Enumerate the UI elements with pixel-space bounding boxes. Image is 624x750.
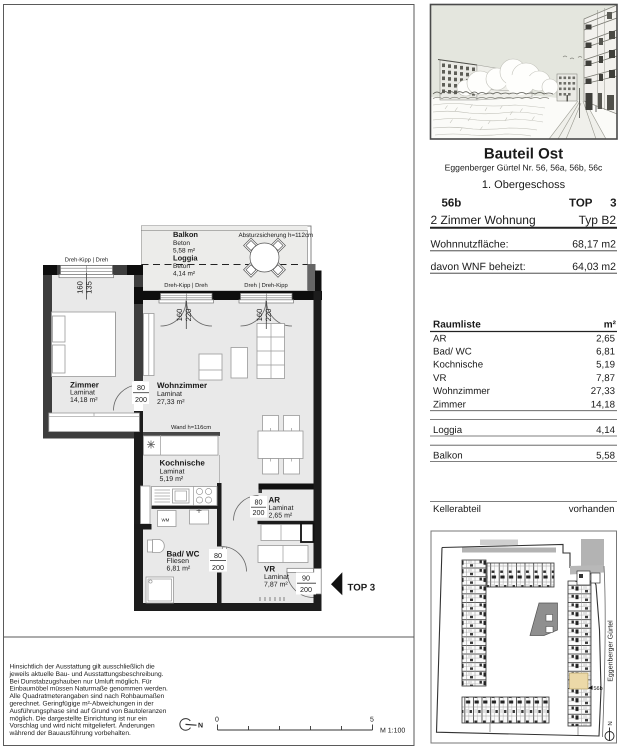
svg-text:7,87: 7,87 bbox=[596, 373, 615, 384]
svg-text:Bad/ WC: Bad/ WC bbox=[433, 347, 472, 358]
svg-text:Loggia: Loggia bbox=[173, 254, 198, 263]
svg-text:M 1:100: M 1:100 bbox=[380, 728, 405, 735]
svg-text:160: 160 bbox=[75, 281, 84, 294]
svg-text:WM: WM bbox=[162, 518, 170, 523]
svg-text:80: 80 bbox=[255, 498, 263, 507]
svg-text:0: 0 bbox=[215, 717, 219, 724]
svg-text:Vorschlag und wird nicht mitge: Vorschlag und wird nicht mitgeliefert. Ä… bbox=[10, 722, 155, 730]
svg-text:27,33 m²: 27,33 m² bbox=[157, 399, 185, 406]
svg-text:davon WNF beheizt:: davon WNF beheizt: bbox=[431, 261, 526, 273]
svg-text:Kochnische: Kochnische bbox=[433, 360, 483, 371]
svg-text:Loggia: Loggia bbox=[433, 425, 463, 436]
svg-text:56b: 56b bbox=[442, 198, 462, 210]
svg-text:Laminat: Laminat bbox=[264, 573, 289, 581]
svg-text:90: 90 bbox=[302, 574, 310, 583]
svg-text:200: 200 bbox=[212, 563, 224, 572]
svg-text:200: 200 bbox=[253, 508, 265, 517]
svg-text:Eggenberger Gürtel: Eggenberger Gürtel bbox=[607, 620, 615, 682]
svg-text:Bei Dunstabzugshauben nur Umlu: Bei Dunstabzugshauben nur Umluft möglich… bbox=[10, 678, 153, 685]
svg-text:200: 200 bbox=[300, 585, 312, 594]
svg-text:Laminat: Laminat bbox=[160, 468, 185, 476]
svg-text:5,19: 5,19 bbox=[596, 360, 615, 371]
svg-text:möglich. Die dargestellte Einr: möglich. Die dargestellte Einrichtung is… bbox=[10, 715, 148, 722]
svg-text:vorhanden: vorhanden bbox=[569, 504, 615, 515]
svg-text:4,14 m²: 4,14 m² bbox=[173, 271, 196, 278]
svg-text:Laminat: Laminat bbox=[70, 389, 95, 397]
svg-text:5,19 m²: 5,19 m² bbox=[160, 476, 184, 483]
svg-text:gerechnet. Geringfügige m²-Abw: gerechnet. Geringfügige m²-Abweichungen … bbox=[10, 701, 155, 708]
svg-text:Kellerabteil: Kellerabteil bbox=[433, 504, 481, 515]
svg-text:TOP: TOP bbox=[569, 198, 593, 210]
svg-text:Fliesen: Fliesen bbox=[167, 557, 190, 565]
svg-text:Bauteil Ost: Bauteil Ost bbox=[484, 146, 563, 163]
svg-text:Dreh-Kipp | Dreh: Dreh-Kipp | Dreh bbox=[164, 282, 207, 289]
svg-text:Ausführungsphase sind auf Grun: Ausführungsphase sind auf Grund von Baut… bbox=[10, 708, 167, 715]
svg-text:N: N bbox=[198, 723, 203, 730]
svg-text:Laminat: Laminat bbox=[269, 504, 294, 512]
svg-text:68,17 m2: 68,17 m2 bbox=[572, 239, 616, 251]
svg-text:220: 220 bbox=[264, 309, 273, 322]
svg-text:14,18: 14,18 bbox=[591, 399, 615, 410]
svg-text:80: 80 bbox=[214, 551, 222, 560]
svg-text:TOP 3: TOP 3 bbox=[348, 582, 376, 593]
svg-text:Einbaumöbel müssen Naturmaße g: Einbaumöbel müssen Naturmaße genommen we… bbox=[10, 686, 168, 693]
svg-text:Zimmer: Zimmer bbox=[433, 399, 467, 410]
svg-text:2,65: 2,65 bbox=[596, 333, 615, 344]
svg-text:200: 200 bbox=[135, 395, 147, 404]
svg-text:Beton: Beton bbox=[173, 240, 190, 247]
svg-text:N: N bbox=[607, 721, 614, 725]
svg-text:Typ B2: Typ B2 bbox=[579, 213, 617, 227]
svg-text:Dreh-Kipp | Dreh: Dreh-Kipp | Dreh bbox=[65, 257, 108, 264]
svg-text:Balkon: Balkon bbox=[173, 230, 198, 239]
svg-text:64,03 m2: 64,03 m2 bbox=[572, 261, 616, 273]
svg-text:AR: AR bbox=[433, 333, 446, 344]
svg-text:Eggenberger Gürtel Nr. 56, 56a: Eggenberger Gürtel Nr. 56, 56a, 56b, 56c bbox=[445, 163, 603, 173]
svg-text:2,65 m²: 2,65 m² bbox=[269, 513, 293, 520]
svg-text:6,81: 6,81 bbox=[596, 347, 615, 358]
svg-text:5: 5 bbox=[370, 717, 374, 724]
svg-text:Balkon: Balkon bbox=[433, 451, 463, 462]
svg-text:Laminat: Laminat bbox=[157, 390, 182, 398]
svg-text:Alle Quadratmeterangaben sind: Alle Quadratmeterangaben sind nach Rohba… bbox=[10, 693, 165, 700]
svg-text:160: 160 bbox=[255, 309, 264, 322]
svg-text:AR: AR bbox=[269, 496, 281, 505]
svg-text:Beton: Beton bbox=[173, 263, 190, 270]
svg-text:Hinsichtlich der Ausstattung g: Hinsichtlich der Ausstattung gilt aussch… bbox=[10, 664, 155, 671]
svg-text:Raumliste: Raumliste bbox=[433, 320, 481, 331]
svg-text:Dreh | Dreh-Kipp: Dreh | Dreh-Kipp bbox=[244, 282, 287, 289]
svg-text:Absturzsicherung h=112cm: Absturzsicherung h=112cm bbox=[239, 232, 314, 239]
svg-text:Wand h=116cm: Wand h=116cm bbox=[171, 424, 211, 431]
svg-text:220: 220 bbox=[184, 309, 193, 322]
svg-text:135: 135 bbox=[84, 281, 93, 294]
svg-text:27,33: 27,33 bbox=[591, 386, 615, 397]
svg-text:160: 160 bbox=[175, 309, 184, 322]
svg-text:Wohnzimmer: Wohnzimmer bbox=[157, 381, 207, 390]
svg-text:Kochnische: Kochnische bbox=[160, 459, 206, 468]
svg-text:Wohnnutzfläche:: Wohnnutzfläche: bbox=[431, 239, 509, 251]
svg-text:80: 80 bbox=[137, 383, 145, 392]
svg-text:Wohnzimmer: Wohnzimmer bbox=[433, 386, 491, 397]
svg-text:6,81 m²: 6,81 m² bbox=[167, 566, 191, 573]
svg-text:VR: VR bbox=[433, 373, 446, 384]
svg-text:m²: m² bbox=[604, 320, 617, 331]
svg-text:Zimmer: Zimmer bbox=[70, 381, 99, 390]
svg-text:56b: 56b bbox=[594, 686, 603, 692]
svg-text:2 Zimmer Wohnung: 2 Zimmer Wohnung bbox=[431, 213, 536, 227]
svg-text:4,14: 4,14 bbox=[596, 425, 615, 436]
svg-text:3: 3 bbox=[610, 198, 616, 210]
svg-text:VR: VR bbox=[264, 565, 275, 574]
svg-text:1. Obergeschoss: 1. Obergeschoss bbox=[482, 179, 566, 191]
svg-text:7,87 m²: 7,87 m² bbox=[264, 582, 288, 589]
svg-text:14,18 m²: 14,18 m² bbox=[70, 397, 98, 404]
svg-text:5,58: 5,58 bbox=[596, 451, 615, 462]
svg-text:jeweils aktuelle Bau- und Auss: jeweils aktuelle Bau- und Ausstattungsbe… bbox=[9, 671, 164, 678]
svg-text:während der Bauausführung vorb: während der Bauausführung vorbehalten. bbox=[9, 730, 132, 737]
